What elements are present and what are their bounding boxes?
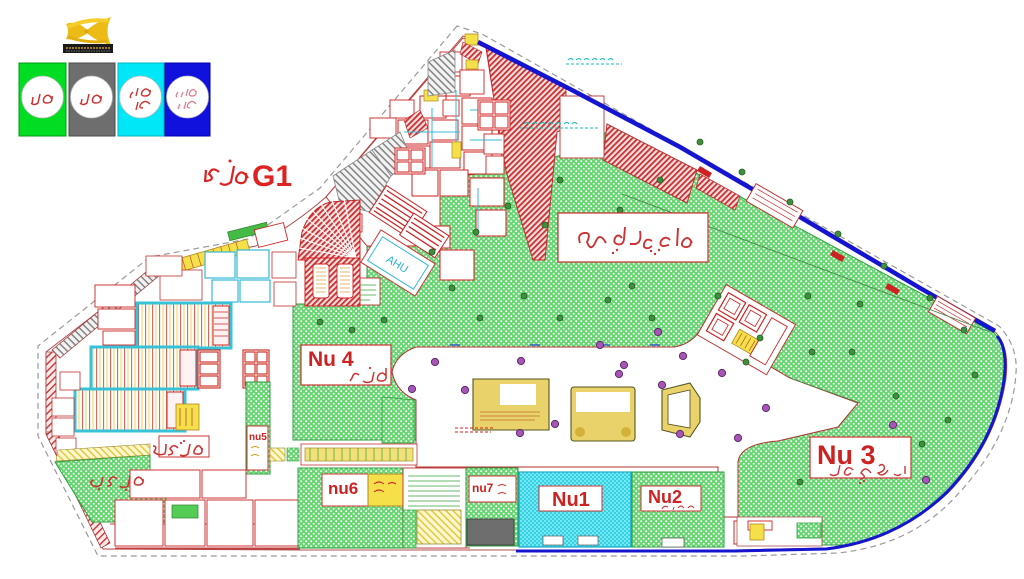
svg-text:Nu 3: Nu 3 xyxy=(817,440,876,470)
svg-text:nu5: nu5 xyxy=(249,432,267,443)
svg-text:Nu 4: Nu 4 xyxy=(308,348,354,371)
svg-text:Nu1: Nu1 xyxy=(552,489,590,511)
svg-text:Nu2: Nu2 xyxy=(648,487,682,507)
svg-text:nu6: nu6 xyxy=(328,479,358,498)
svg-text:nu7: nu7 xyxy=(472,481,494,495)
svg-text:G1: G1 xyxy=(252,160,292,193)
